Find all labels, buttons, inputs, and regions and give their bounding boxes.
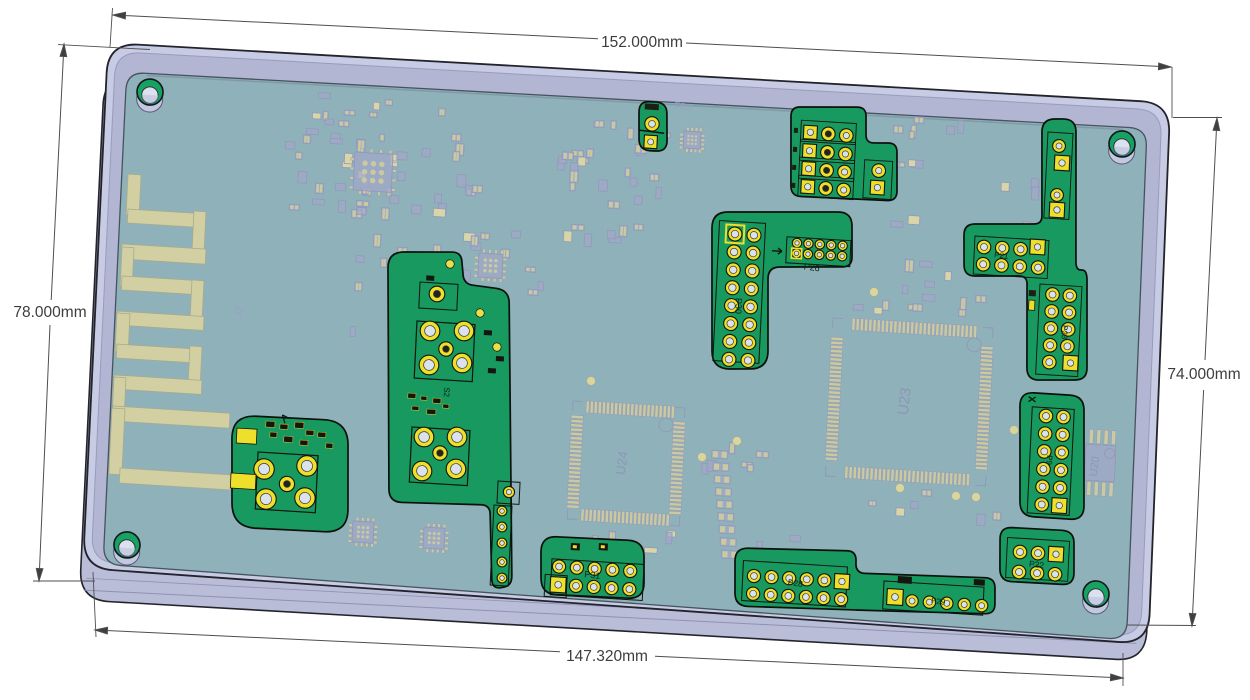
svg-text:P21: P21 xyxy=(994,250,1010,261)
svg-text:147.320mm: 147.320mm xyxy=(566,648,648,665)
svg-text:78.000mm: 78.000mm xyxy=(13,304,86,321)
svg-text:P31: P31 xyxy=(584,569,601,581)
svg-text:U20: U20 xyxy=(1088,456,1102,478)
svg-text:U23: U23 xyxy=(895,387,915,417)
svg-text:P28: P28 xyxy=(787,577,803,589)
svg-text:74.000mm: 74.000mm xyxy=(1167,366,1240,383)
svg-text:S2: S2 xyxy=(442,387,451,398)
svg-text:P26: P26 xyxy=(803,261,820,273)
svg-text:U24: U24 xyxy=(613,450,631,476)
svg-text:152.000mm: 152.000mm xyxy=(601,34,683,51)
svg-text:P23: P23 xyxy=(1060,325,1070,340)
svg-text:P30: P30 xyxy=(733,298,744,315)
svg-text:P29: P29 xyxy=(931,596,947,607)
svg-text:J2: J2 xyxy=(233,305,246,318)
svg-text:P9: P9 xyxy=(1045,455,1054,466)
svg-text:P22: P22 xyxy=(1028,558,1044,570)
